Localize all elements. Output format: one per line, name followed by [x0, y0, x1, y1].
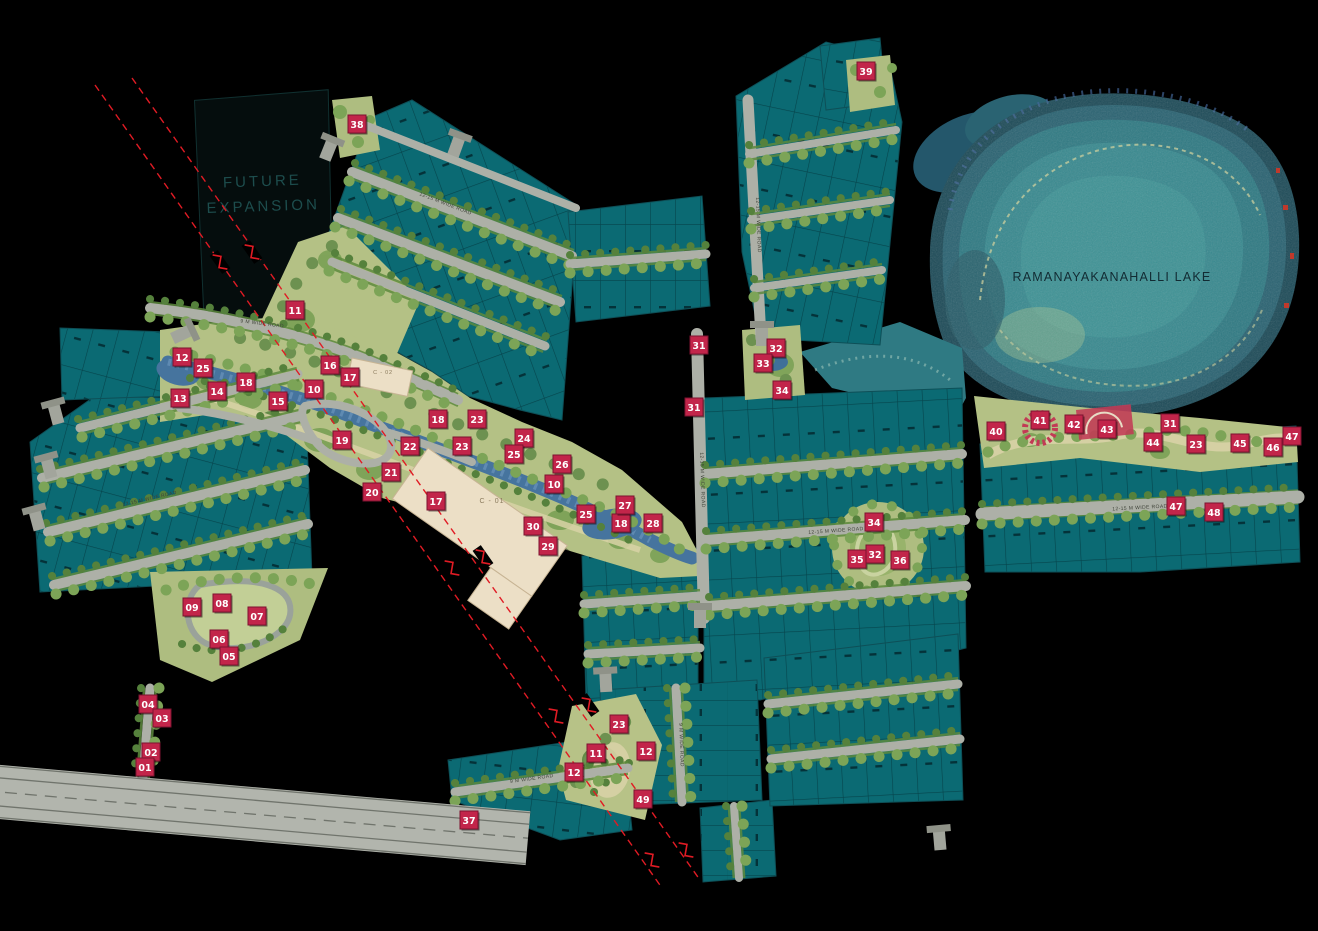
master-plan-canvas: FUTURE EXPANSION RAMANAYAKANAHALLI LAKE: [0, 0, 1318, 931]
svg-text:03: 03: [155, 714, 168, 725]
plot-marker-48[interactable]: 48: [1205, 503, 1225, 523]
plot-marker-23[interactable]: 23: [468, 410, 488, 430]
plot-marker-45[interactable]: 45: [1231, 434, 1251, 454]
plot-marker-08[interactable]: 08: [213, 594, 233, 614]
plot-marker-34[interactable]: 34: [773, 381, 793, 401]
plot-group-southeast: [764, 634, 963, 806]
svg-text:46: 46: [1266, 443, 1280, 454]
svg-text:21: 21: [384, 468, 397, 479]
svg-text:13: 13: [173, 394, 186, 405]
svg-text:12: 12: [567, 768, 580, 779]
svg-text:40: 40: [989, 427, 1003, 438]
plot-marker-28[interactable]: 28: [644, 514, 664, 534]
plot-marker-43[interactable]: 43: [1098, 420, 1118, 440]
svg-text:31: 31: [692, 341, 705, 352]
svg-text:15: 15: [271, 397, 284, 408]
svg-text:17: 17: [343, 373, 356, 384]
plot-marker-11[interactable]: 11: [286, 301, 306, 321]
svg-text:23: 23: [470, 415, 483, 426]
svg-text:23: 23: [612, 720, 625, 731]
plot-marker-18[interactable]: 18: [237, 373, 257, 393]
svg-text:18: 18: [614, 519, 628, 530]
plot-marker-19[interactable]: 19: [333, 431, 353, 451]
svg-text:09: 09: [185, 603, 198, 614]
plot-marker-12[interactable]: 12: [173, 348, 193, 368]
plot-marker-16[interactable]: 16: [321, 356, 341, 376]
svg-text:07: 07: [250, 612, 263, 623]
svg-text:01: 01: [138, 763, 151, 774]
plot-marker-42[interactable]: 42: [1065, 415, 1085, 435]
site-master-plan: FUTURE EXPANSION RAMANAYAKANAHALLI LAKE: [0, 0, 1318, 931]
svg-text:26: 26: [555, 460, 569, 471]
plot-marker-17[interactable]: 17: [341, 368, 361, 388]
svg-text:10: 10: [547, 480, 561, 491]
svg-text:23: 23: [455, 442, 468, 453]
plot-marker-29[interactable]: 29: [539, 537, 559, 557]
plot-marker-31[interactable]: 31: [690, 336, 710, 356]
plot-marker-10[interactable]: 10: [305, 380, 325, 400]
plot-marker-46[interactable]: 46: [1264, 438, 1284, 458]
plot-marker-38[interactable]: 38: [348, 115, 368, 135]
svg-text:18: 18: [239, 378, 253, 389]
svg-text:28: 28: [646, 519, 660, 530]
svg-text:38: 38: [350, 120, 364, 131]
plot-marker-25[interactable]: 25: [505, 445, 525, 465]
plot-marker-17[interactable]: 17: [427, 492, 447, 512]
plot-marker-20[interactable]: 20: [363, 483, 383, 503]
plot-marker-37[interactable]: 37: [460, 811, 480, 831]
clubhouse-c01-label: C - 01: [479, 498, 504, 505]
plot-marker-07[interactable]: 07: [248, 607, 268, 627]
clubhouse-c02-label: C - 02: [373, 370, 393, 376]
plot-marker-30[interactable]: 30: [524, 517, 544, 537]
plot-marker-40[interactable]: 40: [987, 422, 1007, 442]
plot-marker-05[interactable]: 05: [220, 647, 240, 667]
svg-text:11: 11: [589, 749, 602, 760]
svg-text:47: 47: [1285, 432, 1298, 443]
svg-text:23: 23: [1189, 440, 1202, 451]
plot-marker-41[interactable]: 41: [1031, 411, 1051, 431]
svg-text:45: 45: [1233, 439, 1246, 450]
plot-marker-36[interactable]: 36: [891, 551, 911, 571]
svg-text:25: 25: [196, 364, 209, 375]
svg-text:34: 34: [775, 386, 789, 397]
svg-text:39: 39: [859, 67, 872, 78]
plot-marker-31[interactable]: 31: [685, 398, 705, 418]
future-expansion-label-1: FUTURE: [223, 172, 302, 192]
plot-marker-47[interactable]: 47: [1167, 497, 1187, 517]
plot-marker-33[interactable]: 33: [754, 354, 774, 374]
svg-text:29: 29: [541, 542, 554, 553]
svg-text:42: 42: [1067, 420, 1080, 431]
svg-text:41: 41: [1033, 416, 1046, 427]
svg-text:31: 31: [687, 403, 700, 414]
plot-marker-18[interactable]: 18: [612, 514, 632, 534]
svg-text:44: 44: [1146, 438, 1160, 449]
plot-marker-39[interactable]: 39: [857, 62, 877, 82]
svg-text:33: 33: [756, 359, 769, 370]
svg-text:49: 49: [636, 795, 649, 806]
svg-text:10: 10: [307, 385, 321, 396]
plot-marker-21[interactable]: 21: [382, 463, 402, 483]
svg-text:37: 37: [462, 816, 475, 827]
plot-group-west-upper: [60, 328, 170, 400]
svg-text:34: 34: [867, 518, 881, 529]
svg-text:11: 11: [288, 306, 301, 317]
plot-marker-49[interactable]: 49: [634, 790, 654, 810]
plot-marker-11[interactable]: 11: [587, 744, 607, 764]
svg-text:05: 05: [222, 652, 235, 663]
svg-text:19: 19: [335, 436, 348, 447]
plot-marker-31[interactable]: 31: [1161, 414, 1181, 434]
plot-marker-25[interactable]: 25: [194, 359, 214, 379]
svg-text:16: 16: [323, 361, 337, 372]
svg-text:02: 02: [144, 748, 157, 759]
plot-marker-23[interactable]: 23: [610, 715, 630, 735]
plot-marker-14[interactable]: 14: [208, 382, 228, 402]
svg-text:43: 43: [1100, 425, 1113, 436]
svg-text:32: 32: [868, 550, 881, 561]
svg-text:25: 25: [507, 450, 520, 461]
svg-text:17: 17: [429, 497, 442, 508]
svg-text:22: 22: [403, 442, 416, 453]
svg-text:24: 24: [517, 434, 531, 445]
plot-marker-27[interactable]: 27: [616, 496, 636, 516]
plot-marker-35[interactable]: 35: [848, 550, 868, 570]
plot-marker-23[interactable]: 23: [1187, 435, 1207, 455]
svg-text:36: 36: [893, 556, 907, 567]
plot-marker-18[interactable]: 18: [429, 410, 449, 430]
svg-text:25: 25: [579, 510, 592, 521]
plot-marker-44[interactable]: 44: [1144, 433, 1164, 453]
svg-text:48: 48: [1207, 508, 1221, 519]
plot-marker-25[interactable]: 25: [577, 505, 597, 525]
plot-marker-01[interactable]: 01: [136, 758, 156, 778]
plot-marker-12[interactable]: 12: [565, 763, 585, 783]
plot-marker-10[interactable]: 10: [545, 475, 565, 495]
svg-text:31: 31: [1163, 419, 1176, 430]
svg-text:32: 32: [769, 344, 782, 355]
plot-marker-34[interactable]: 34: [865, 513, 885, 533]
plot-marker-26[interactable]: 26: [553, 455, 573, 475]
svg-text:08: 08: [215, 599, 229, 610]
plot-marker-13[interactable]: 13: [171, 389, 191, 409]
svg-text:27: 27: [618, 501, 631, 512]
svg-text:35: 35: [850, 555, 863, 566]
plot-marker-32[interactable]: 32: [866, 545, 886, 565]
svg-text:12: 12: [175, 353, 188, 364]
plot-marker-09[interactable]: 09: [183, 598, 203, 618]
svg-text:30: 30: [526, 522, 540, 533]
plot-marker-12[interactable]: 12: [637, 742, 657, 762]
svg-text:18: 18: [431, 415, 445, 426]
plot-marker-15[interactable]: 15: [269, 392, 289, 412]
svg-text:06: 06: [212, 635, 226, 646]
plot-marker-03[interactable]: 03: [153, 709, 173, 729]
lake-label: RAMANAYAKANAHALLI LAKE: [1013, 270, 1212, 284]
svg-text:14: 14: [210, 387, 224, 398]
plot-marker-22[interactable]: 22: [401, 437, 421, 457]
svg-text:47: 47: [1169, 502, 1182, 513]
plot-marker-23[interactable]: 23: [453, 437, 473, 457]
svg-text:20: 20: [365, 488, 379, 499]
plot-marker-47[interactable]: 47: [1283, 427, 1303, 447]
svg-text:12: 12: [639, 747, 652, 758]
